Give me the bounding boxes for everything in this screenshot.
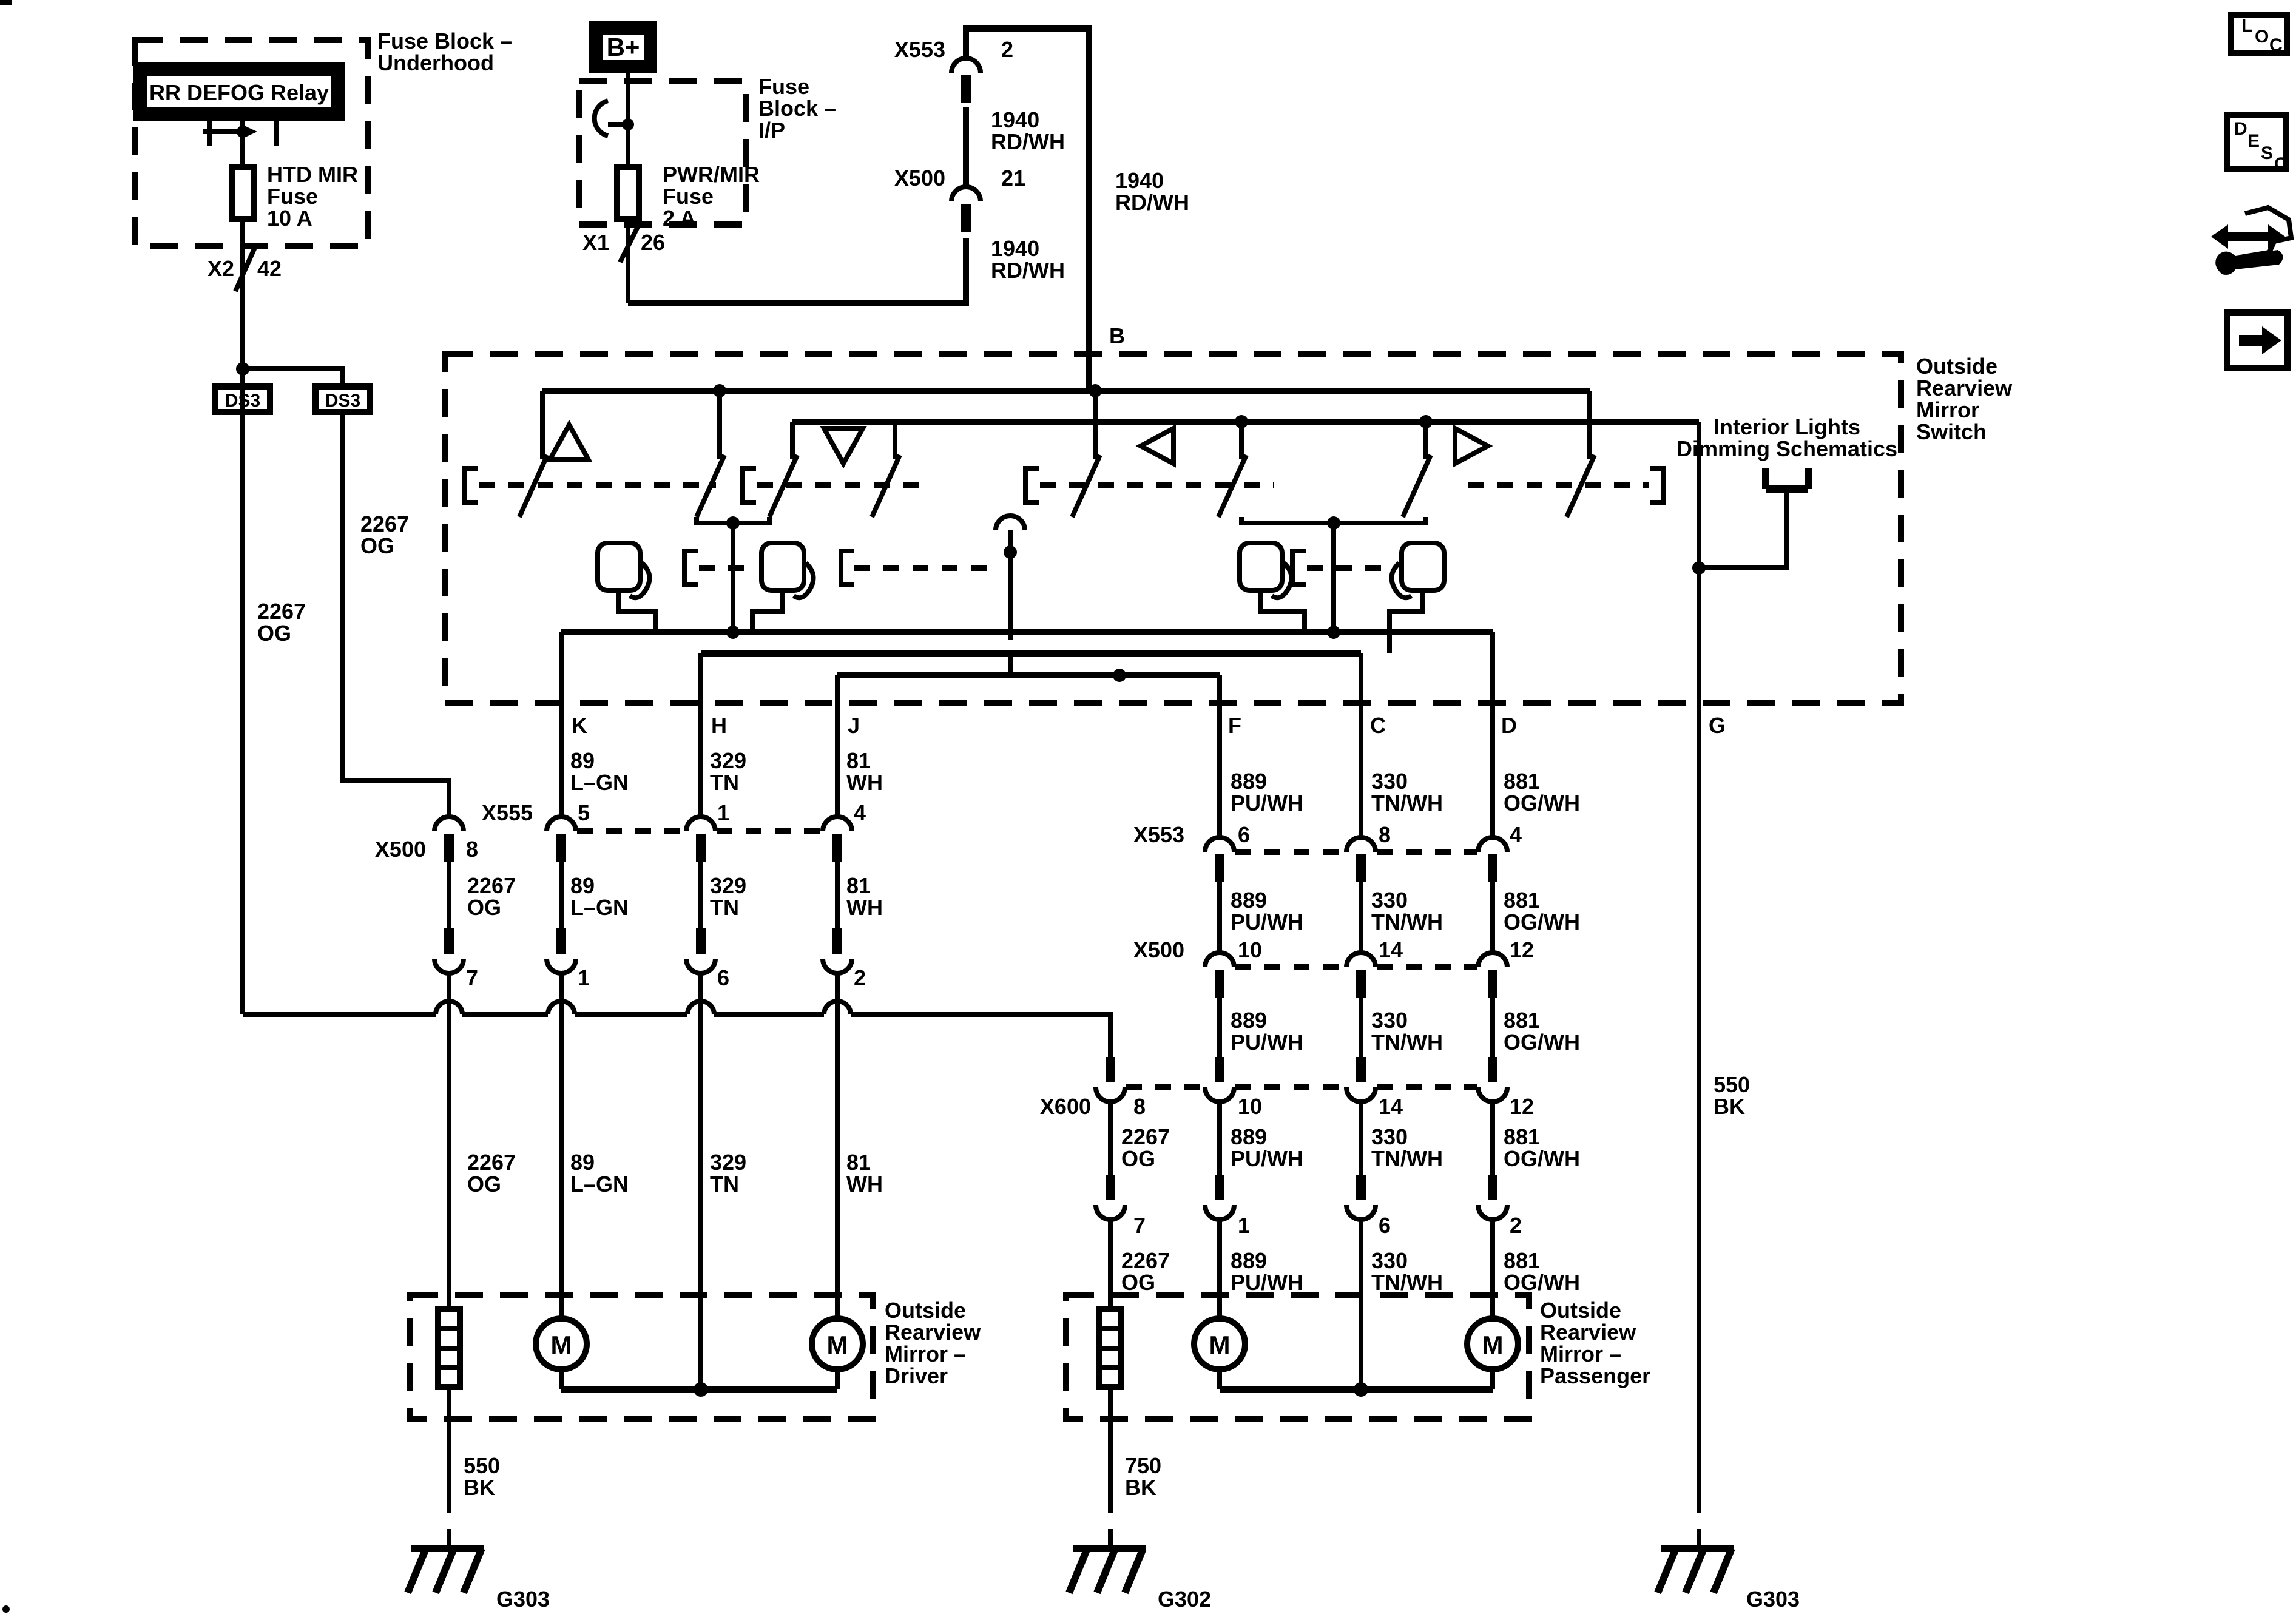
connector-arc <box>1096 1087 1125 1102</box>
fuse-label: 2 A <box>663 206 696 231</box>
ground-stroke <box>1714 1548 1732 1593</box>
ground-symbol-g303-right <box>1658 1548 1734 1593</box>
wire-label: TN <box>710 895 739 920</box>
wire-label: WH <box>846 770 883 795</box>
wire-label: PU/WH <box>1231 1270 1303 1295</box>
ground-label: G303 <box>1746 1587 1800 1612</box>
motor-label: M <box>1482 1331 1504 1359</box>
wire-label: 329 <box>710 873 746 898</box>
pin-label: 10 <box>1238 1094 1262 1119</box>
wire-label: 750 <box>1125 1453 1161 1478</box>
pin-letter-d: D <box>1501 713 1517 738</box>
passenger-title: Outside <box>1540 1298 1621 1323</box>
connector-arc <box>1478 837 1507 852</box>
connector-arc <box>1205 1087 1234 1102</box>
pin-letter-g: G <box>1709 713 1726 738</box>
driver-title: Mirror – <box>885 1342 966 1366</box>
scan-artifact <box>0 0 12 5</box>
connector-arc <box>996 516 1025 530</box>
switch-title: Switch <box>1916 419 1987 444</box>
connector-terminal <box>1488 1175 1497 1200</box>
wire-label: 889 <box>1231 1248 1267 1273</box>
ds3-lines: DS3 DS3 2267 OG 2267 OG <box>215 362 449 1014</box>
pin-label: 1 <box>717 800 729 825</box>
switch-ground-run: 550 BK G303 <box>1658 703 1800 1612</box>
junction-dot <box>726 626 740 639</box>
driver-mirror-assembly: Outside Rearview Mirror – Driver M M 550… <box>408 1295 981 1612</box>
connector-arc <box>1096 1205 1125 1220</box>
connector-arc <box>1205 953 1234 967</box>
connector-row-x555: X555 5 1 4 <box>482 800 866 862</box>
wire-label: 2267 <box>1121 1248 1170 1273</box>
side-toolbar: L O C D E S C <box>2211 15 2291 368</box>
mirror-icon-4 <box>1402 543 1444 590</box>
ground-label: G303 <box>496 1587 550 1612</box>
wire-label: BK <box>1714 1094 1745 1119</box>
ground-stroke <box>1097 1548 1115 1593</box>
wire-label: 2267 <box>467 873 516 898</box>
pin-label: 14 <box>1379 1094 1403 1119</box>
ground-symbol-g302 <box>1069 1548 1146 1593</box>
junction-dot <box>694 1382 708 1397</box>
pin-label: 4 <box>1510 822 1522 847</box>
wire-label: OG/WH <box>1504 791 1580 815</box>
wire-label: TN <box>710 770 739 795</box>
fuse-label: Fuse <box>267 184 318 209</box>
pin-label: 8 <box>1379 822 1391 847</box>
desc-letter: S <box>2261 143 2273 163</box>
tap-hook-symbol <box>595 101 608 136</box>
connector-arc <box>547 817 576 831</box>
connector-terminal <box>556 834 566 862</box>
wire-label: TN/WH <box>1371 791 1443 815</box>
connector-terminal <box>1488 854 1497 882</box>
wire-label: WH <box>846 895 883 920</box>
pin-label: 8 <box>466 837 478 862</box>
connector-arc <box>951 58 981 73</box>
offpage-bracket <box>1766 468 1808 489</box>
wire-label: 550 <box>464 1453 500 1478</box>
wire-label: 550 <box>1714 1072 1750 1097</box>
switch-title: Outside <box>1916 354 1997 379</box>
scan-artifact <box>2 1605 10 1613</box>
connector-label: X1 <box>582 230 609 255</box>
connector-arc <box>1205 1205 1234 1220</box>
wire-label: 81 <box>846 1150 871 1175</box>
connector-arc <box>686 817 715 831</box>
right-arrow-icon <box>2262 326 2281 354</box>
mirror-icon-1 <box>598 543 640 590</box>
wire-label: TN/WH <box>1371 1146 1443 1171</box>
connector-row-lower-left: 7 1 6 2 <box>434 928 866 990</box>
wire-label: 2267 <box>467 1150 516 1175</box>
ground-stroke <box>436 1548 454 1593</box>
wire-label: 2267 <box>257 599 306 624</box>
pin-label: 2 <box>1510 1213 1522 1238</box>
wire-label: 89 <box>570 1150 595 1175</box>
connector-terminal <box>961 75 971 103</box>
wire-letter-b: B <box>1109 323 1125 348</box>
motor-label: M <box>827 1331 848 1359</box>
wire-label: OG <box>1121 1146 1155 1171</box>
fuse-label: HTD MIR <box>267 162 358 187</box>
up-triangle-icon <box>550 425 589 460</box>
connector-terminal <box>1356 1057 1366 1082</box>
connector-terminal <box>1488 970 1497 998</box>
wire-label: 881 <box>1504 888 1540 913</box>
pin-label: 26 <box>641 230 665 255</box>
desc-letter: E <box>2247 131 2260 151</box>
driver-title: Outside <box>885 1298 966 1323</box>
connector-terminal <box>556 928 566 954</box>
connector-arc <box>434 817 464 831</box>
wire-label: OG/WH <box>1504 1146 1580 1171</box>
passenger-title: Mirror – <box>1540 1342 1621 1366</box>
wire-label: 1940 <box>1115 168 1164 193</box>
pin-letters: K H J F C D G <box>572 713 1726 738</box>
wire-label: 881 <box>1504 769 1540 794</box>
loc-letter: O <box>2255 27 2269 47</box>
connector-label: X500 <box>375 837 426 862</box>
wire-label: 330 <box>1371 1008 1408 1033</box>
connector-terminal <box>1488 1057 1497 1082</box>
fuse-label: PWR/MIR <box>663 162 760 187</box>
wire-label: 889 <box>1231 1008 1267 1033</box>
wire <box>752 590 783 632</box>
wire-label: OG/WH <box>1504 910 1580 934</box>
switch-title: Rearview <box>1916 376 2013 400</box>
linkage-bracket <box>1650 468 1664 502</box>
pin-label: 7 <box>466 965 478 990</box>
contact <box>1403 455 1431 517</box>
pin-label: 1 <box>1238 1213 1250 1238</box>
switch-up <box>465 391 724 517</box>
right-triangle-icon <box>1455 428 1488 464</box>
pin-label: 4 <box>854 800 866 825</box>
pin-label: 7 <box>1133 1213 1146 1238</box>
pin-letter-f: F <box>1228 713 1241 738</box>
wire-label: OG <box>1121 1270 1155 1295</box>
wire-label: 889 <box>1231 769 1267 794</box>
tools-icon[interactable] <box>2211 208 2291 275</box>
linkage-bracket <box>841 551 854 585</box>
passenger-dashed-box <box>1066 1295 1529 1419</box>
connector-arc <box>686 959 715 973</box>
ground-stroke <box>1125 1548 1143 1593</box>
htd-mir-fuse-symbol <box>232 167 254 219</box>
wire-label: PU/WH <box>1231 910 1303 934</box>
connector-terminal <box>696 834 706 862</box>
wire-label: 89 <box>570 748 595 773</box>
pwr-mir-fuse-symbol <box>617 167 639 219</box>
left-triangle-icon <box>1141 428 1173 464</box>
connector-terminal <box>961 204 971 232</box>
wire-label: 881 <box>1504 1124 1540 1149</box>
driver-dashed-box <box>410 1295 873 1419</box>
wire-label: 329 <box>710 748 746 773</box>
wire-label: 330 <box>1371 888 1408 913</box>
wire <box>1699 489 1787 568</box>
linkage-bracket <box>465 468 478 502</box>
connector-terminal <box>1215 970 1224 998</box>
ground-label: G302 <box>1158 1587 1211 1612</box>
wire-label: 2267 <box>1121 1124 1170 1149</box>
motor-label: M <box>1209 1331 1231 1359</box>
connector-label: X555 <box>482 800 533 825</box>
passenger-title: Rearview <box>1540 1320 1636 1345</box>
wire-label: 330 <box>1371 1124 1408 1149</box>
wire-label: RD/WH <box>1115 190 1189 215</box>
wire-label: 330 <box>1371 769 1408 794</box>
linkage-bracket <box>743 468 756 502</box>
junction-dot <box>1004 545 1017 559</box>
interior-lights-label: Dimming Schematics <box>1676 436 1897 461</box>
connector-label: X500 <box>1133 937 1184 962</box>
pin-label: 6 <box>1238 822 1250 847</box>
wire-label: 889 <box>1231 1124 1267 1149</box>
contact <box>697 455 724 517</box>
pin-label: 14 <box>1379 937 1403 962</box>
wire-label: 81 <box>846 873 871 898</box>
connector-terminal <box>444 928 454 954</box>
wire-label: RD/WH <box>991 258 1065 283</box>
driver-title: Rearview <box>885 1320 981 1345</box>
switch-down <box>743 422 928 517</box>
mirror-icon-2 <box>761 543 804 590</box>
wire <box>851 1014 1110 1057</box>
connector-arc <box>823 817 852 831</box>
wire-label: L–GN <box>570 895 629 920</box>
pin-label: 8 <box>1133 1094 1146 1119</box>
connector-arc <box>1205 837 1234 852</box>
interior-lights-label: Interior Lights <box>1714 414 1860 439</box>
wire-label: PU/WH <box>1231 791 1303 815</box>
mirror-switch-box: Outside Rearview Mirror Switch <box>445 354 2013 703</box>
ds3-label: DS3 <box>325 391 360 411</box>
wire-label: BK <box>1125 1475 1156 1500</box>
passenger-mirror-assembly: Outside Rearview Mirror – Passenger M M … <box>1066 1295 1650 1612</box>
connector-label: X553 <box>1133 822 1184 847</box>
driver-title: Driver <box>885 1363 948 1388</box>
junction-dot <box>1327 626 1340 639</box>
pin-label: 10 <box>1238 937 1262 962</box>
motor-label: M <box>551 1331 572 1359</box>
pin-letter-c: C <box>1370 713 1386 738</box>
wire-label: OG <box>360 533 394 558</box>
wire-label: WH <box>846 1172 883 1197</box>
connector-arc <box>434 959 464 973</box>
mirror-icon-3 <box>1240 543 1282 590</box>
wire-label: TN/WH <box>1371 1030 1443 1055</box>
loc-button[interactable]: L O C <box>2231 15 2287 55</box>
connector-arc <box>1346 837 1376 852</box>
wire-label: 2267 <box>360 511 409 536</box>
linkage-bracket <box>684 551 698 585</box>
wire-label: OG <box>257 621 291 646</box>
wire-label: 1940 <box>991 107 1039 132</box>
connector-terminal <box>1106 1057 1115 1082</box>
wire-label: PU/WH <box>1231 1030 1303 1055</box>
connector-arc <box>1478 1087 1507 1102</box>
connector-terminal <box>832 834 842 862</box>
pin-label: 6 <box>1379 1213 1391 1238</box>
underhood-title: Fuse Block – <box>377 29 512 53</box>
fuse-block-ip: B+ Fuse Block – I/P PWR/MIR Fuse 2 A X1 … <box>579 28 836 303</box>
pin-letter-j: J <box>848 713 860 738</box>
fuse-label: 10 A <box>267 206 312 231</box>
wire <box>966 29 1089 391</box>
desc-letter: C <box>2274 154 2288 174</box>
ground-stroke <box>464 1548 482 1593</box>
wire-label: OG/WH <box>1504 1030 1580 1055</box>
wire-label: 329 <box>710 1150 746 1175</box>
wire <box>628 238 966 303</box>
linkage-bracket <box>1025 468 1039 502</box>
bplus-label: B+ <box>607 33 640 61</box>
wire-label: BK <box>464 1475 495 1500</box>
wire-label: 89 <box>570 873 595 898</box>
wire-label: 1940 <box>991 236 1039 261</box>
mirror-select-row <box>598 543 1444 653</box>
connector-row-x553: X553 6 8 4 <box>1133 822 1522 882</box>
ground-stroke <box>408 1548 426 1593</box>
ground-stroke <box>1658 1548 1676 1593</box>
wire-label: OG <box>467 895 501 920</box>
left-columns: 89 L–GN 329 TN 81 WH X555 5 1 4 X500 8 <box>375 632 883 1389</box>
connector-arc <box>1346 953 1376 967</box>
connector-arc <box>823 959 852 973</box>
wire-label: 330 <box>1371 1248 1408 1273</box>
switch-title: Mirror <box>1916 397 1979 422</box>
wire-label: 881 <box>1504 1248 1540 1273</box>
passenger-title: Passenger <box>1540 1363 1650 1388</box>
pin-label: 6 <box>717 965 729 990</box>
connector-arc <box>547 959 576 973</box>
connector-arc <box>1346 1087 1376 1102</box>
connector-arc <box>1346 1205 1376 1220</box>
pin-letter-k: K <box>572 713 587 738</box>
connector-terminal <box>444 834 454 862</box>
connector-terminal <box>696 928 706 954</box>
right-columns: 889 PU/WH 330 TN/WH 881 OG/WH X553 6 8 4… <box>1040 632 1580 1389</box>
connector-terminal <box>1356 970 1366 998</box>
ip-title: I/P <box>758 118 785 143</box>
desc-letter: D <box>2234 119 2247 139</box>
og-cross-run <box>243 1001 1110 1057</box>
junction-dot <box>622 118 634 130</box>
wiring-diagram-page: Fuse Block – Underhood RR DEFOG Relay HT… <box>0 0 2296 1617</box>
linkage-bracket <box>1292 551 1306 585</box>
pin-label: 2 <box>1001 37 1013 62</box>
wire-label: TN <box>710 1172 739 1197</box>
connector-arc <box>1478 1205 1507 1220</box>
pin-label: 12 <box>1510 1094 1534 1119</box>
b-feed-wiring: X500 21 1940 RD/WH X553 2 1940 RD/WH 194… <box>628 29 1189 391</box>
wire-label: 81 <box>846 748 871 773</box>
connector-arc <box>951 187 981 201</box>
underhood-title: Underhood <box>377 50 494 75</box>
wire-label: L–GN <box>570 1172 629 1197</box>
wire-label: 881 <box>1504 1008 1540 1033</box>
ip-title: Fuse <box>758 74 809 99</box>
ground-symbol-g303-left <box>408 1548 484 1593</box>
connector-terminal <box>1215 1175 1224 1200</box>
connector-row-lower-right: 7 1 6 2 <box>1096 1175 1522 1238</box>
connector-label: X500 <box>894 166 945 191</box>
junction-dot <box>1113 669 1126 682</box>
connector-label: X600 <box>1040 1094 1091 1119</box>
wire-label: 889 <box>1231 888 1267 913</box>
pin-label: 21 <box>1001 166 1025 191</box>
junction-dot <box>1354 1382 1368 1397</box>
connector-row-x500-right: X500 10 14 12 <box>1133 937 1534 998</box>
wire-label: PU/WH <box>1231 1146 1303 1171</box>
down-triangle-icon <box>824 428 863 464</box>
ground-stroke <box>1686 1548 1704 1593</box>
switch-left <box>1025 391 1274 517</box>
wire-label: RD/WH <box>991 129 1065 154</box>
connector-x500-8: X500 8 <box>375 817 478 862</box>
connector-terminal <box>1356 1175 1366 1200</box>
switch-right <box>1403 391 1664 517</box>
ds3-label: DS3 <box>225 391 260 411</box>
wire-label: OG/WH <box>1504 1270 1580 1295</box>
loc-letter: C <box>2269 35 2283 55</box>
pin-label: 12 <box>1510 937 1534 962</box>
wire-label: L–GN <box>570 770 629 795</box>
wire-label: TN/WH <box>1371 1270 1443 1295</box>
rr-defog-relay-label: RR DEFOG Relay <box>149 80 329 105</box>
fuse-label: Fuse <box>663 184 714 209</box>
arrow-left-head <box>2211 224 2228 249</box>
wire-label: TN/WH <box>1371 910 1443 934</box>
connector-terminal <box>832 928 842 954</box>
connector-label: X2 <box>208 256 234 281</box>
pin-letter-h: H <box>711 713 727 738</box>
connector-terminal <box>1356 854 1366 882</box>
pin-label: 5 <box>578 800 590 825</box>
pin-label: 42 <box>257 256 282 281</box>
connector-arc <box>1478 953 1507 967</box>
pin-label: 1 <box>578 965 590 990</box>
connector-terminal <box>1215 854 1224 882</box>
ip-title: Block – <box>758 96 836 121</box>
ground-stroke <box>1069 1548 1087 1593</box>
wire-label: OG <box>467 1172 501 1197</box>
pin-label: 2 <box>854 965 866 990</box>
loc-letter: L <box>2241 16 2252 36</box>
connector-terminal <box>1215 1057 1224 1082</box>
next-button[interactable] <box>2227 312 2288 368</box>
desc-button[interactable]: D E S C <box>2227 115 2288 174</box>
wire <box>343 412 449 817</box>
connector-terminal <box>1106 1175 1115 1200</box>
connector-row-x600: X600 8 10 14 12 <box>1040 1057 1534 1119</box>
connector-label: X553 <box>894 37 945 62</box>
